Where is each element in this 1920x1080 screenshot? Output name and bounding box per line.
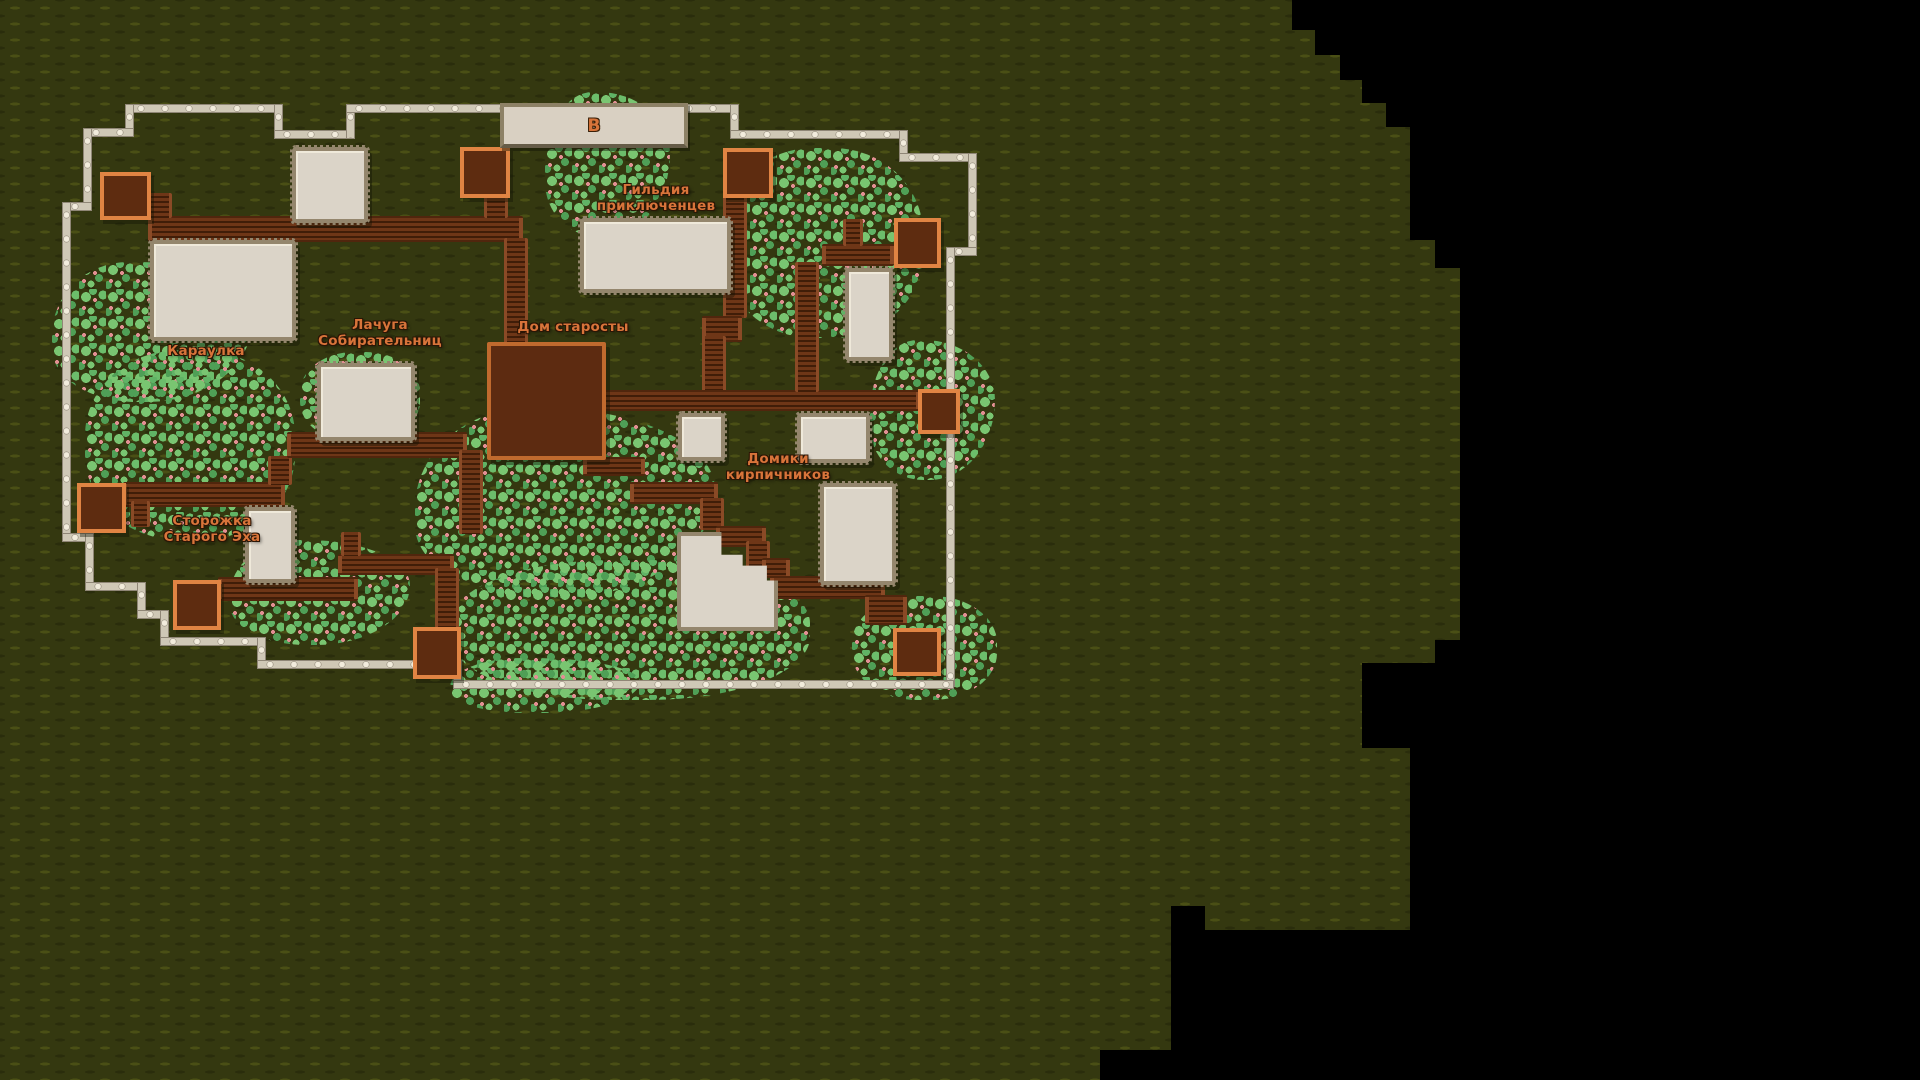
game-map-screen: ВГильдия приключенцевДом старостыЛачуга … xyxy=(0,0,1920,1080)
palisade-fence xyxy=(83,128,92,211)
plank-road xyxy=(131,501,150,527)
building-gatherers-shack xyxy=(317,363,415,441)
plank-road xyxy=(459,450,483,534)
gate-east-lower xyxy=(918,389,960,434)
gate-southwest xyxy=(173,580,221,630)
gate-east-upper xyxy=(894,218,941,268)
plank-road xyxy=(822,244,894,266)
building-adventurers-guild xyxy=(580,218,731,293)
palisade-fence xyxy=(968,153,977,256)
plank-road xyxy=(268,456,292,485)
building-elder-house xyxy=(487,342,606,460)
palisade-fence xyxy=(946,423,955,687)
sign-letter: В xyxy=(588,116,601,136)
palisade-fence xyxy=(62,202,71,542)
gate-south-center xyxy=(413,627,461,679)
village-entrance-sign: В xyxy=(500,103,688,148)
location-label-brickmakers-houses: Домики кирпичников xyxy=(726,452,830,484)
plank-road xyxy=(843,219,863,246)
plank-road xyxy=(435,568,459,628)
location-label-old-echo-lodge: Сторожка Старого Эха xyxy=(164,514,261,546)
plank-road xyxy=(795,262,819,392)
palisade-fence xyxy=(730,130,908,139)
palisade-fence xyxy=(946,247,955,394)
building-shed-center-1 xyxy=(678,413,725,461)
gate-north-east xyxy=(723,148,773,198)
map-canvas[interactable]: ВГильдия приключенцевДом старостыЛачуга … xyxy=(0,0,1920,1080)
plank-road xyxy=(598,390,920,411)
gate-north-center xyxy=(460,147,510,198)
gate-northwest xyxy=(100,172,151,220)
plank-road xyxy=(865,595,907,625)
building-guardhouse xyxy=(150,240,296,341)
gate-west xyxy=(77,483,126,533)
location-label-guardhouse: Караулка xyxy=(167,344,244,360)
palisade-fence xyxy=(346,104,506,113)
building-tall-house-east xyxy=(845,268,893,361)
gate-southeast xyxy=(893,628,941,676)
location-label-elder-house: Дом старосты xyxy=(517,320,628,336)
plank-road xyxy=(702,336,726,392)
palisade-fence xyxy=(899,153,977,162)
palisade-fence xyxy=(453,680,954,689)
location-label-gatherers-shack: Лачуга Собирательниц xyxy=(318,318,442,350)
palisade-fence xyxy=(257,660,419,669)
palisade-fence xyxy=(128,104,282,113)
building-small-house-northwest xyxy=(292,147,368,223)
palisade-fence xyxy=(274,130,355,139)
palisade-fence xyxy=(160,637,266,646)
plank-road xyxy=(148,193,172,218)
plank-road xyxy=(341,532,361,556)
building-brickmaker-house-east xyxy=(820,483,896,585)
location-label-adventurers-guild: Гильдия приключенцев xyxy=(597,183,715,215)
